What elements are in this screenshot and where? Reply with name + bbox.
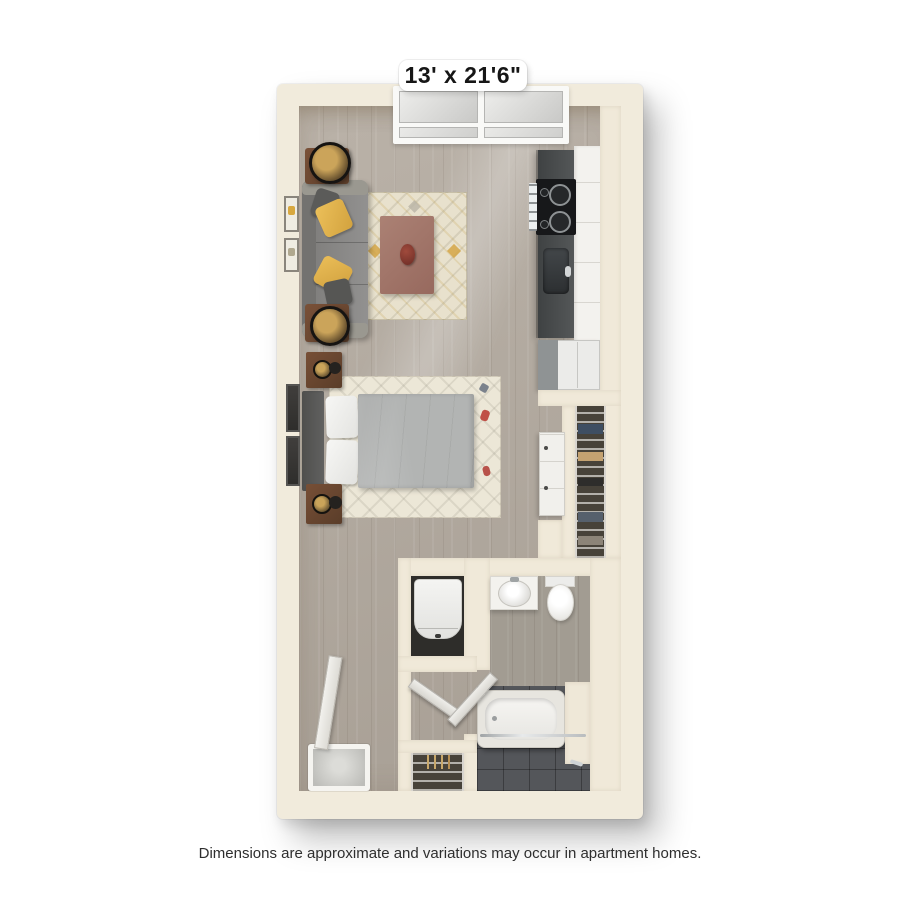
sink-basin xyxy=(498,580,531,607)
oven-control-strip xyxy=(529,183,537,231)
dresser xyxy=(539,432,565,516)
linen-closet xyxy=(411,753,464,791)
bathtub-drain xyxy=(492,716,497,721)
stove-burner xyxy=(549,211,571,233)
closet-clothes xyxy=(578,452,603,461)
table-centerpiece xyxy=(400,244,415,265)
table-lamp xyxy=(309,142,351,184)
window-pane xyxy=(484,127,563,138)
wall-art-accent xyxy=(288,206,295,215)
stove-burner xyxy=(540,188,549,197)
shower-rod xyxy=(480,734,586,737)
washer-lid-seam xyxy=(418,628,458,629)
hanger xyxy=(441,755,443,769)
stove-burner xyxy=(549,184,571,206)
bed-duvet xyxy=(358,394,474,488)
stove-burner xyxy=(540,220,549,229)
doormat xyxy=(313,749,365,786)
bathroom-faucet xyxy=(510,577,519,582)
closet-clothes xyxy=(578,512,603,522)
wall-bath-right xyxy=(590,558,621,791)
nightstand-lamp-shade xyxy=(329,496,342,509)
closet-clothes xyxy=(578,536,603,545)
kitchen-cabinets xyxy=(574,146,600,342)
washer-dryer xyxy=(414,579,462,639)
nightstand-lamp-shade xyxy=(329,362,341,374)
hanger xyxy=(427,755,429,769)
wall-art-frame-dark xyxy=(286,384,300,432)
wall-bath-top xyxy=(398,558,621,576)
closet-clothes xyxy=(578,424,603,434)
wall-column-left xyxy=(398,558,411,791)
sofa-cushion-seam xyxy=(316,242,368,243)
wall-niche-bottom xyxy=(398,656,477,672)
dimension-label: 13' x 21'6" xyxy=(399,60,527,91)
bed-pillow xyxy=(325,395,358,438)
window-pane xyxy=(399,91,478,123)
wall-closet-stub xyxy=(538,520,562,558)
bed-headboard xyxy=(302,391,324,491)
refrigerator-top xyxy=(538,340,558,390)
hanger xyxy=(448,755,450,769)
disclaimer-text: Dimensions are approximate and variation… xyxy=(0,845,900,862)
closet-clothes xyxy=(578,478,603,486)
wall-column-right-upper xyxy=(464,558,490,670)
bath-ledge xyxy=(565,682,590,764)
toilet xyxy=(547,584,574,621)
bed-pillow xyxy=(325,439,359,484)
dresser-handle xyxy=(544,486,548,490)
window-pane xyxy=(399,127,478,138)
wall-art-accent xyxy=(288,248,295,256)
washer-latch xyxy=(435,634,441,638)
sink-faucet xyxy=(565,266,571,277)
wall-below-fridge xyxy=(538,390,621,406)
window-pane xyxy=(484,91,563,123)
wall-art-frame-dark xyxy=(286,436,300,486)
table-lamp xyxy=(310,306,350,346)
refrigerator-seam xyxy=(577,342,578,388)
dresser-handle xyxy=(544,446,548,450)
hanger xyxy=(434,755,436,769)
floor-plan xyxy=(277,84,643,819)
wall-column-lower xyxy=(398,740,477,753)
